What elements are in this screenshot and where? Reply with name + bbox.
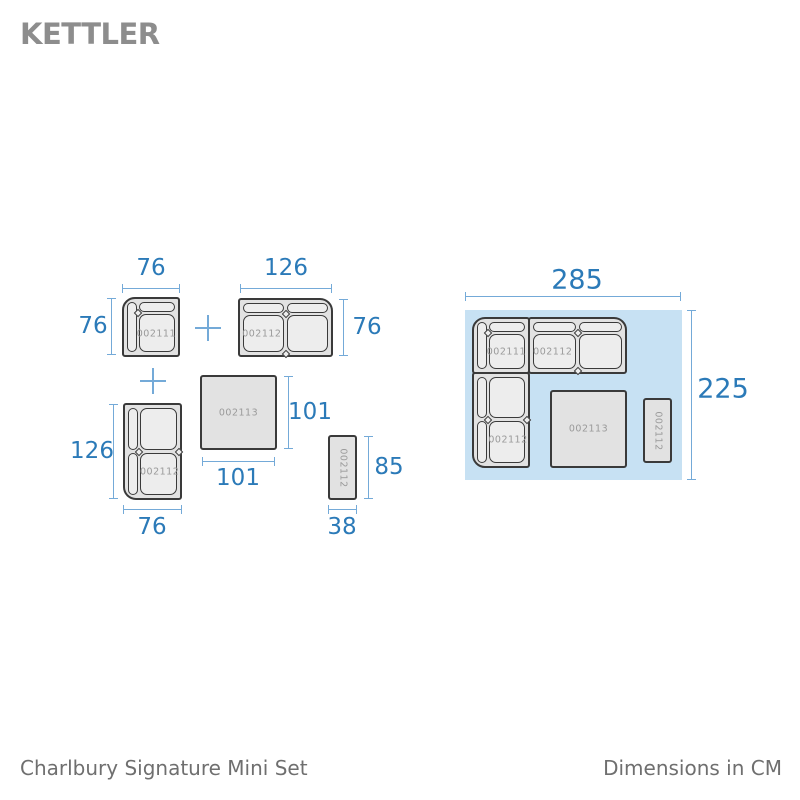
table-piece-plan: 002113 [550, 390, 627, 468]
product-name: Charlbury Signature Mini Set [20, 756, 308, 780]
sku-label: 002113 [569, 424, 608, 435]
dimension-line-vertical [687, 310, 696, 480]
dimension-value-table-width: 101 [216, 465, 260, 491]
seat-cushion [287, 315, 329, 352]
diagram-canvas: KETTLER 76 76 002111 126 76 002112 126 7… [0, 0, 800, 800]
armrest-cushion [477, 322, 487, 369]
seat-cushion [489, 377, 525, 418]
sku-label: 002112 [242, 329, 281, 340]
backrest-cushion [128, 408, 138, 450]
backrest-cushion [139, 302, 175, 312]
dimension-value-bench-width: 38 [327, 514, 356, 540]
sku-label: 002112 [533, 346, 572, 357]
sku-label: 002111 [487, 346, 526, 357]
dimension-line-vertical [364, 436, 373, 499]
plus-icon [140, 368, 166, 394]
sofa-piece-vertical-plan: 002112 [472, 372, 530, 468]
sku-label: 002111 [137, 328, 176, 339]
sku-label: 002113 [219, 407, 258, 418]
units-label: Dimensions in CM [603, 756, 782, 780]
dimension-value-vsofa-depth: 126 [70, 438, 114, 464]
dimension-value-assembled-width: 285 [551, 265, 603, 296]
sku-label: 002112 [140, 466, 179, 477]
backrest-cushion [579, 322, 623, 332]
sku-label: 002112 [652, 411, 663, 450]
cushion-joint [523, 416, 531, 424]
backrest-cushion [533, 322, 576, 332]
dimension-line-horizontal [465, 292, 681, 301]
dimension-line-horizontal [122, 284, 180, 293]
table-piece: 002113 [200, 375, 277, 450]
kettler-logo: KETTLER [20, 17, 160, 51]
sofa-piece-vertical: 002112 [123, 403, 182, 500]
backrest-cushion [477, 421, 487, 463]
dimension-line-horizontal [328, 505, 357, 514]
dimension-value-vsofa-width: 76 [137, 514, 166, 540]
bench-piece-plan: 002112 [643, 398, 672, 463]
dimension-value-sofa-width: 126 [264, 255, 308, 281]
backrest-cushion [287, 303, 329, 313]
backrest-cushion [489, 322, 525, 332]
dimension-line-horizontal [123, 505, 182, 514]
dimension-value-assembled-depth: 225 [697, 374, 749, 405]
dimension-line-vertical [107, 298, 116, 355]
backrest-cushion [128, 453, 138, 496]
dimension-line-vertical [339, 299, 348, 356]
backrest-cushion [477, 377, 487, 418]
cushion-joint [175, 447, 183, 455]
seat-cushion [579, 334, 623, 369]
seat-cushion [140, 408, 177, 450]
cushion-joint [281, 350, 289, 358]
corner-chair-piece: 002111 [122, 297, 180, 357]
sku-label: 002112 [488, 435, 527, 446]
corner-chair-piece-plan: 002111 [472, 317, 530, 374]
dimension-line-horizontal [240, 284, 332, 293]
plus-icon [195, 315, 221, 341]
sku-label: 002112 [337, 448, 348, 487]
dimension-value-chair-width: 76 [136, 255, 165, 281]
bench-piece: 002112 [328, 435, 357, 500]
dimension-value-bench-depth: 85 [374, 454, 403, 480]
dimension-value-sofa-depth: 76 [352, 314, 381, 340]
dimension-value-table-depth: 101 [288, 399, 332, 425]
cushion-joint [573, 367, 581, 375]
dimension-value-chair-depth: 76 [78, 313, 107, 339]
backrest-cushion [243, 303, 284, 313]
sofa-piece-horizontal-plan: 002112 [528, 317, 627, 374]
sofa-piece-horizontal: 002112 [238, 298, 333, 357]
